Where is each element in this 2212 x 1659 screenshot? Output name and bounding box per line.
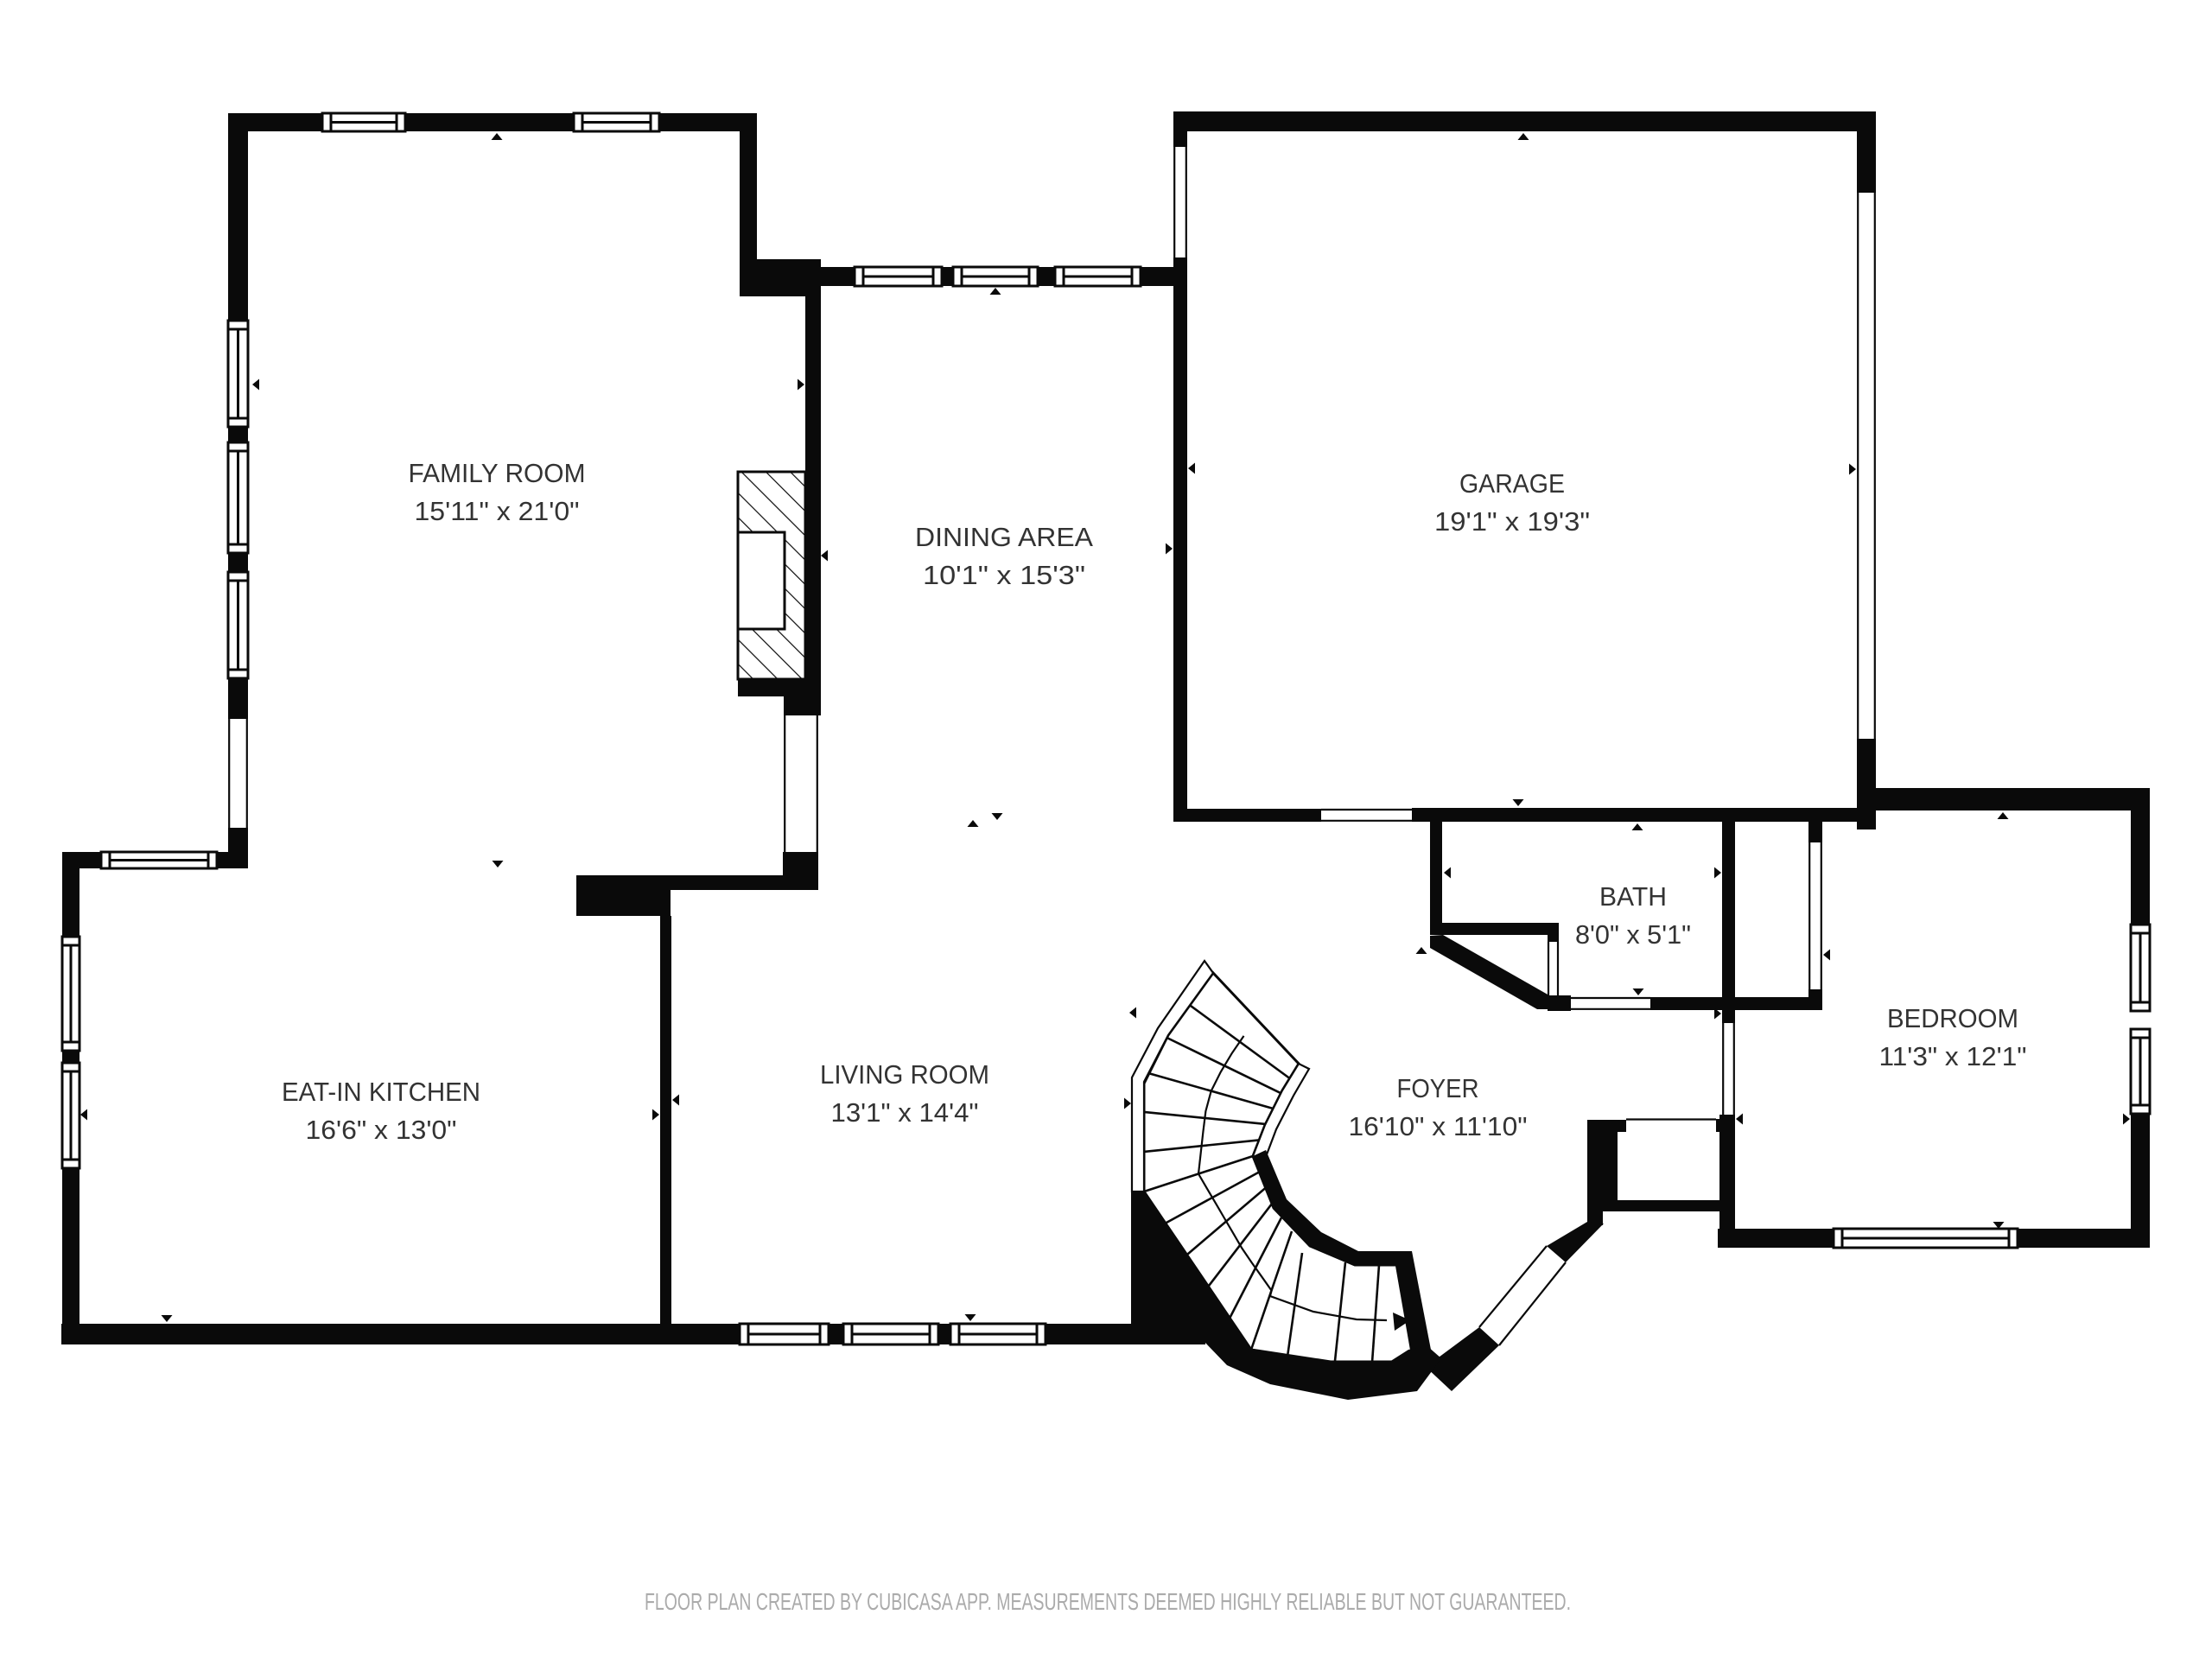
svg-text:FOYER: FOYER bbox=[1397, 1073, 1479, 1103]
svg-text:BEDROOM: BEDROOM bbox=[1887, 1003, 2018, 1033]
svg-text:13'1" x 14'4": 13'1" x 14'4" bbox=[831, 1097, 979, 1128]
svg-text:19'1" x 19'3": 19'1" x 19'3" bbox=[1434, 506, 1590, 537]
svg-text:GARAGE: GARAGE bbox=[1459, 468, 1565, 499]
svg-text:8'0" x 5'1": 8'0" x 5'1" bbox=[1575, 919, 1691, 950]
svg-text:FLOOR PLAN CREATED BY CUBICASA: FLOOR PLAN CREATED BY CUBICASA APP. MEAS… bbox=[645, 1588, 1571, 1615]
svg-text:16'6" x 13'0": 16'6" x 13'0" bbox=[306, 1115, 457, 1145]
svg-text:16'10" x 11'10": 16'10" x 11'10" bbox=[1349, 1111, 1528, 1141]
svg-text:11'3" x 12'1": 11'3" x 12'1" bbox=[1879, 1041, 2027, 1071]
svg-text:EAT-IN KITCHEN: EAT-IN KITCHEN bbox=[282, 1077, 480, 1107]
svg-text:BATH: BATH bbox=[1599, 881, 1667, 912]
svg-text:LIVING ROOM: LIVING ROOM bbox=[820, 1059, 989, 1090]
svg-text:10'1" x 15'3": 10'1" x 15'3" bbox=[923, 560, 1085, 590]
svg-text:15'11" x 21'0": 15'11" x 21'0" bbox=[415, 496, 580, 526]
svg-text:FAMILY ROOM: FAMILY ROOM bbox=[409, 458, 586, 488]
svg-text:DINING AREA: DINING AREA bbox=[915, 522, 1093, 552]
